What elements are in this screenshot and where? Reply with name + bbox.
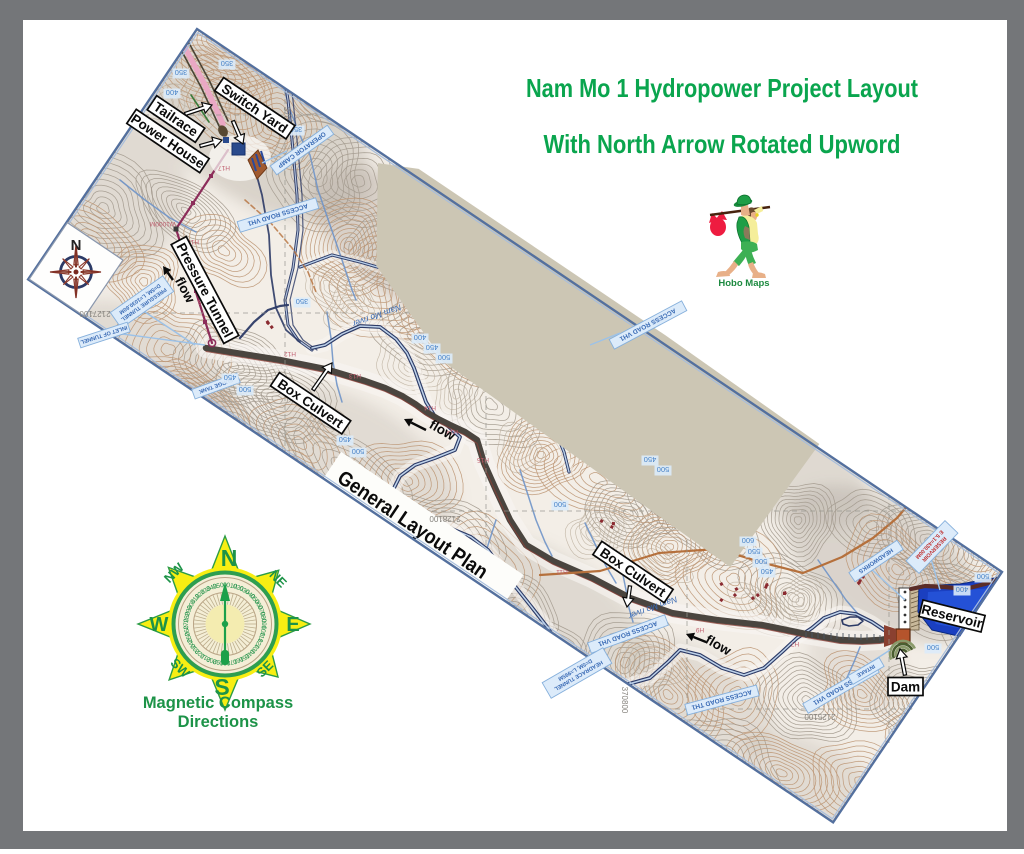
svg-text:Dam: Dam bbox=[891, 679, 920, 694]
svg-text:450: 450 bbox=[224, 373, 237, 382]
svg-text:2128100: 2128100 bbox=[429, 514, 461, 523]
svg-text:H15: H15 bbox=[477, 456, 489, 463]
svg-text:H14: H14 bbox=[424, 404, 436, 411]
svg-text:500: 500 bbox=[438, 353, 451, 362]
svg-text:450: 450 bbox=[339, 435, 352, 444]
svg-text:450: 450 bbox=[426, 343, 439, 352]
svg-text:Directions: Directions bbox=[178, 713, 259, 731]
svg-text:H13: H13 bbox=[349, 372, 361, 379]
svg-text:Hobo Maps: Hobo Maps bbox=[718, 278, 769, 289]
svg-text:500: 500 bbox=[755, 557, 768, 566]
svg-text:Nam Mo 1 Hydropower Project La: Nam Mo 1 Hydropower Project Layout bbox=[526, 73, 918, 103]
svg-text:N: N bbox=[71, 237, 82, 254]
svg-text:E: E bbox=[286, 614, 299, 636]
svg-text:H12: H12 bbox=[284, 350, 296, 357]
svg-text:H17: H17 bbox=[218, 164, 230, 171]
svg-text:350: 350 bbox=[221, 59, 234, 68]
svg-text:350: 350 bbox=[296, 297, 309, 306]
svg-text:500: 500 bbox=[977, 572, 990, 581]
svg-text:W: W bbox=[150, 614, 169, 636]
svg-text:H9: H9 bbox=[695, 626, 704, 633]
svg-text:H7: H7 bbox=[790, 640, 799, 647]
svg-text:350: 350 bbox=[175, 68, 188, 77]
svg-text:N: N bbox=[221, 545, 238, 571]
svg-text:H11: H11 bbox=[556, 568, 568, 575]
svg-text:Magnetic Compass: Magnetic Compass bbox=[143, 694, 293, 712]
svg-text:400: 400 bbox=[166, 88, 179, 97]
svg-text:450: 450 bbox=[644, 455, 657, 464]
svg-text:500: 500 bbox=[239, 385, 252, 394]
svg-text:400: 400 bbox=[414, 333, 427, 342]
svg-text:500: 500 bbox=[554, 500, 567, 509]
svg-text:W1000M: W1000M bbox=[150, 220, 176, 227]
svg-text:500: 500 bbox=[927, 643, 940, 652]
svg-text:2127100: 2127100 bbox=[79, 309, 111, 318]
svg-text:370800: 370800 bbox=[620, 687, 629, 714]
svg-text:550: 550 bbox=[748, 547, 761, 556]
svg-text:450: 450 bbox=[761, 567, 774, 576]
svg-text:500: 500 bbox=[352, 447, 365, 456]
svg-text:400: 400 bbox=[956, 585, 969, 594]
svg-text:With North Arrow Rotated Upwor: With North Arrow Rotated Upword bbox=[544, 129, 901, 159]
svg-text:600: 600 bbox=[742, 536, 755, 545]
svg-text:2125100: 2125100 bbox=[804, 712, 836, 721]
svg-text:500: 500 bbox=[657, 465, 670, 474]
